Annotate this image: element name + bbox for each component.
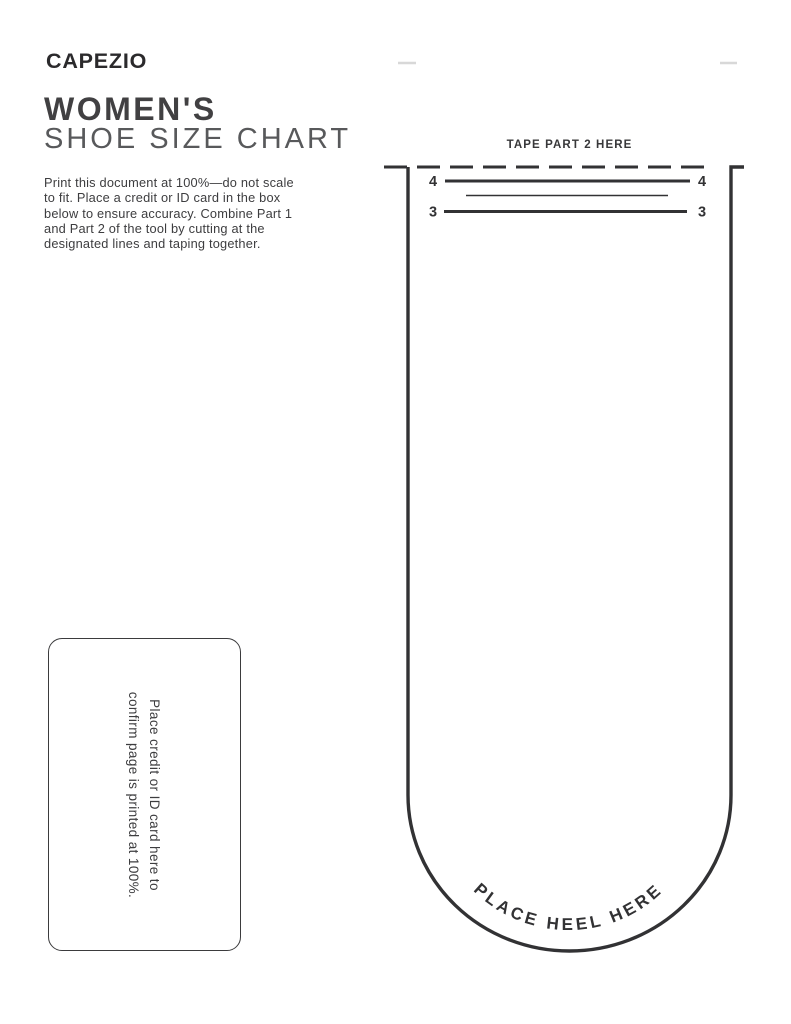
heel-text-arc [434,795,704,930]
shoe-size-chart-page: CAPEZIO WOMEN'S SHOE SIZE CHART Print th… [0,0,791,1024]
size-3-label-left: 3 [429,205,437,221]
size-4-label-right: 4 [698,174,706,190]
foot-measuring-tool: 4 4 3 3 PLACE HEEL HERE [0,0,791,1024]
size-3-label-right: 3 [698,205,706,221]
place-heel-here-label: PLACE HEEL HERE [470,879,666,934]
size-4-label-left: 4 [429,174,437,190]
tool-outline [408,167,744,951]
